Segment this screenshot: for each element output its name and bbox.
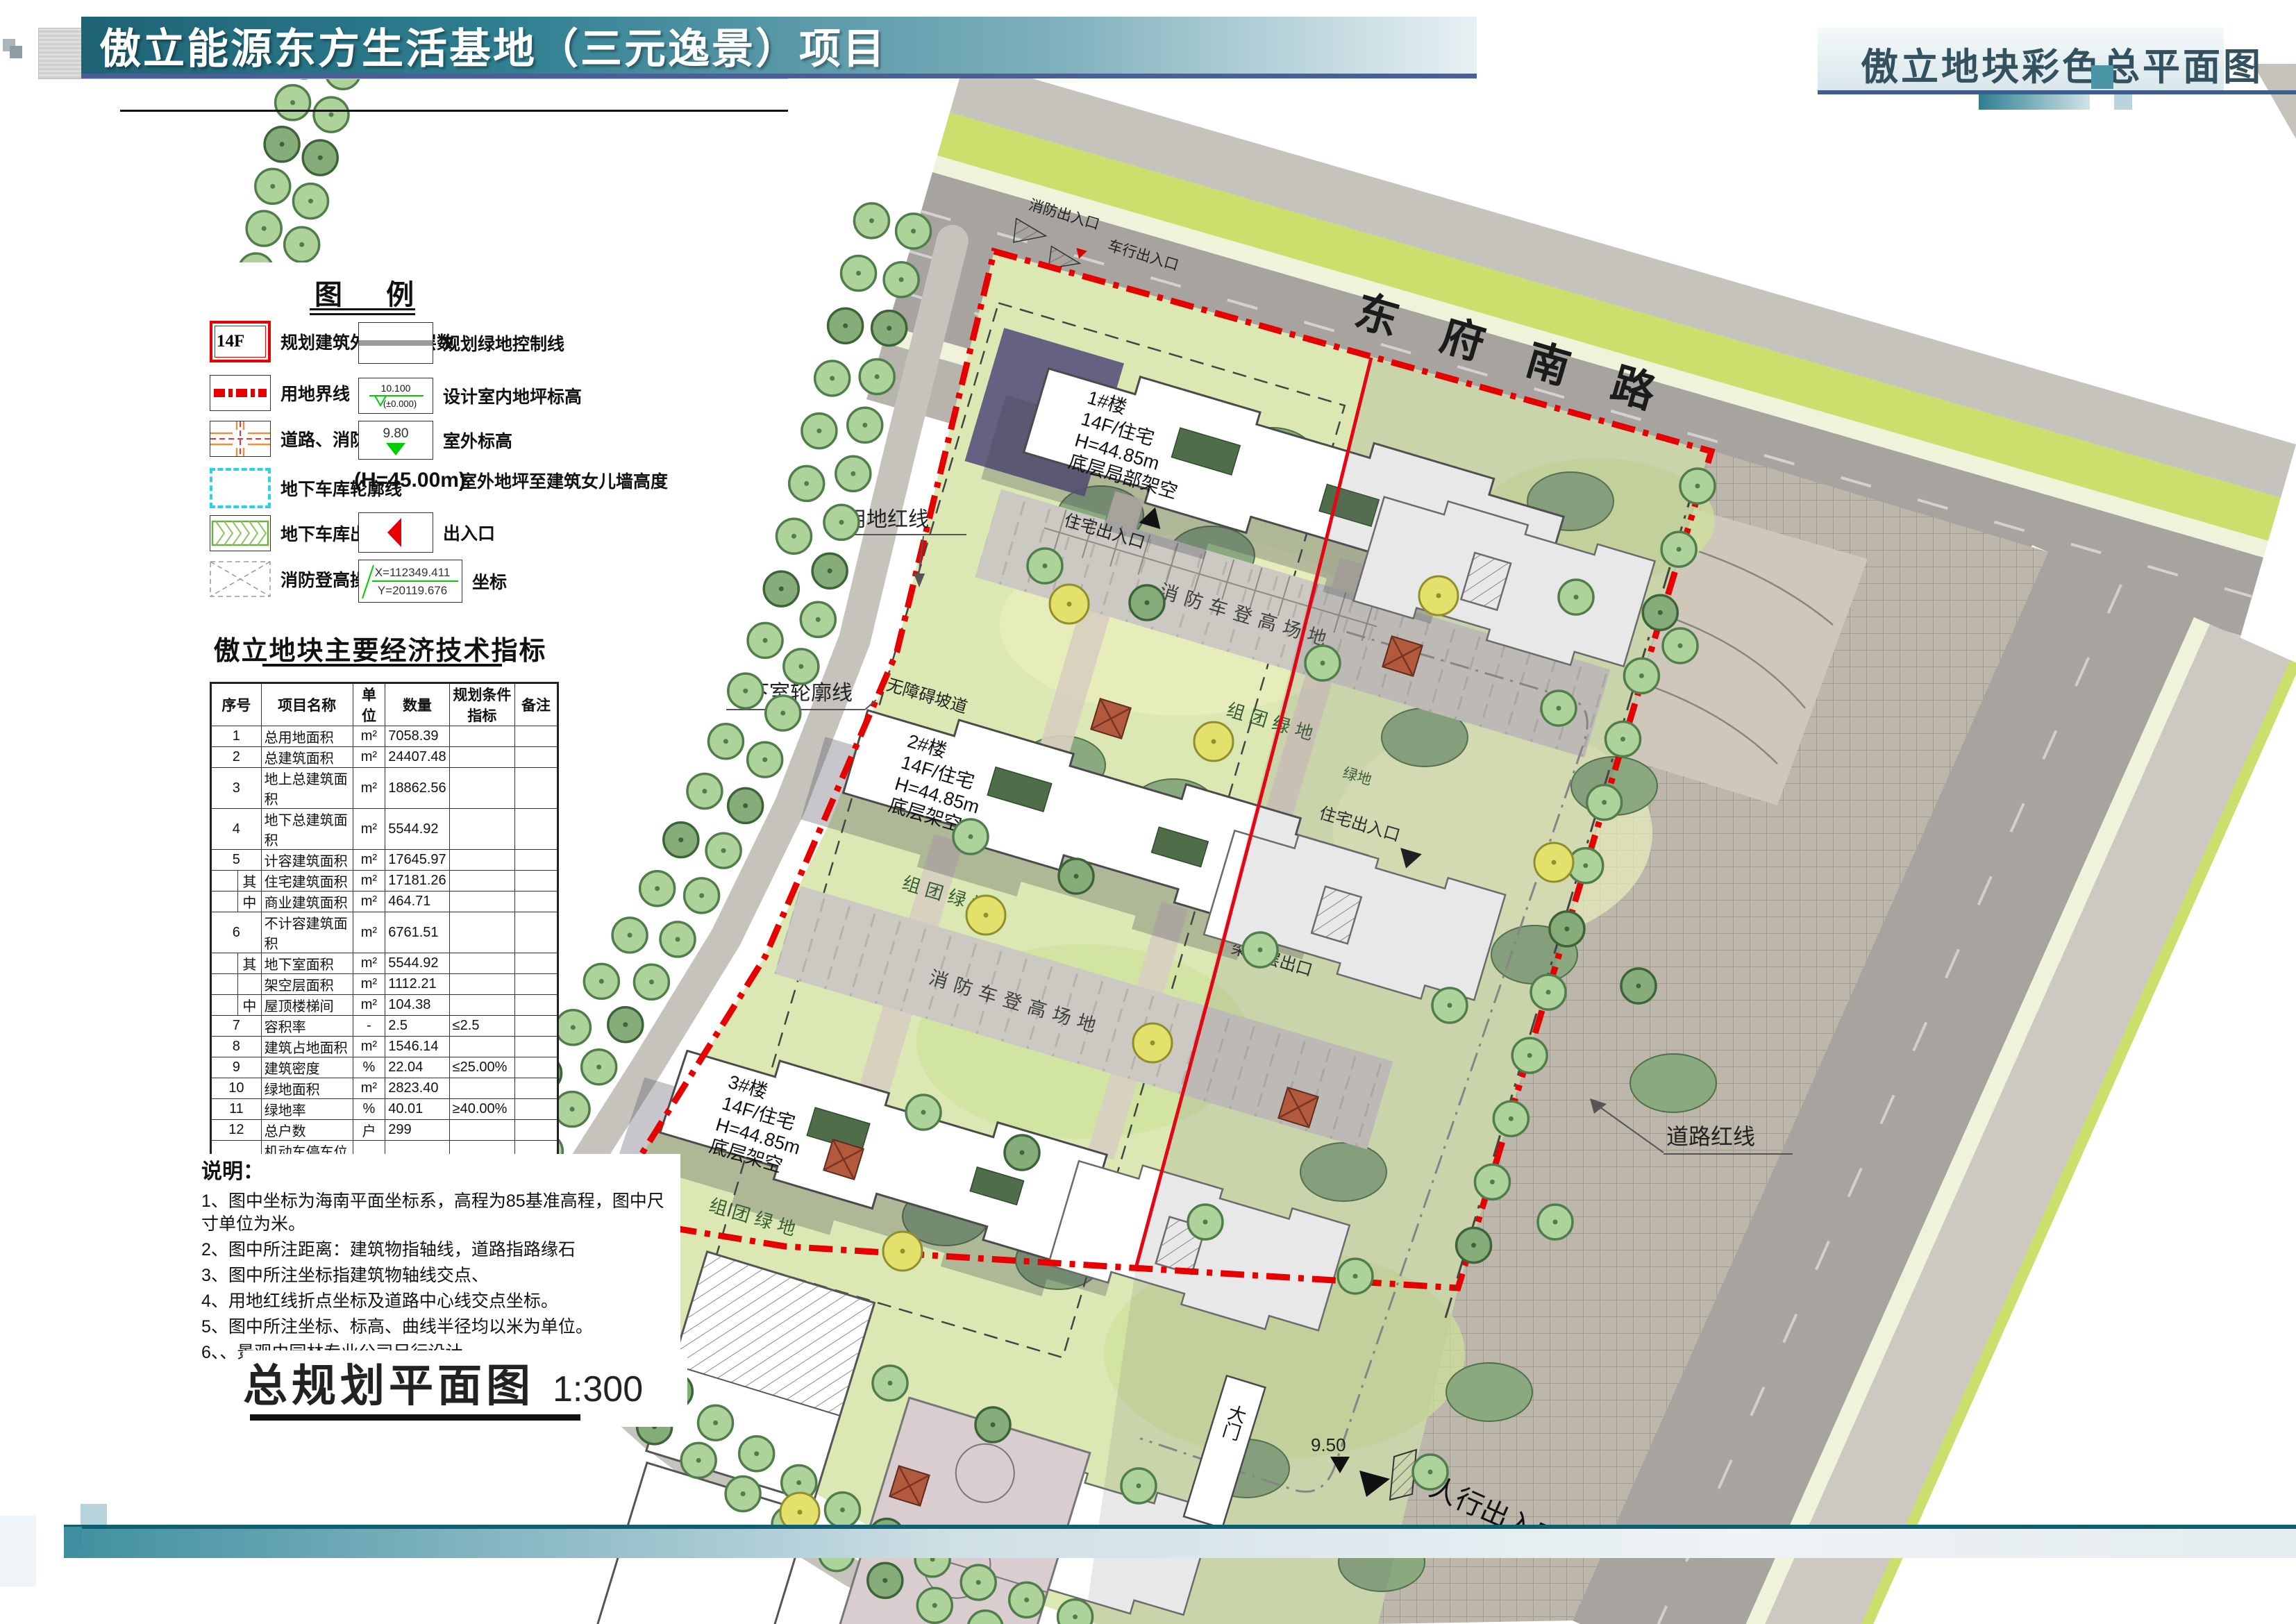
table-cell: 40.01 — [385, 1099, 449, 1120]
table-cell — [515, 995, 558, 1016]
tree-icon — [1243, 932, 1277, 967]
tree-icon — [1028, 549, 1062, 583]
table-cell — [515, 891, 558, 912]
table-cell: m² — [353, 1078, 385, 1099]
table-cell — [449, 1078, 514, 1099]
table-cell — [515, 768, 558, 809]
tree-icon — [873, 1366, 907, 1400]
table-cell: 屋顶楼梯间 — [261, 995, 353, 1016]
legend-item-indoor-level: 10.100 (±0.000) 设计室内地坪标高 — [358, 378, 582, 414]
tree-icon — [612, 918, 647, 953]
tree-icon — [640, 871, 675, 906]
table-header-row: 序号项目名称单位数量规划条件指标备注 — [211, 683, 558, 726]
tree-icon — [1475, 1164, 1509, 1199]
legend-item-site-line: 用地界线 — [210, 375, 350, 411]
green-ctrl-icon — [358, 322, 433, 364]
road-fire-lane-icon — [210, 421, 271, 457]
table-cell: 2823.40 — [385, 1078, 449, 1099]
tree-icon — [824, 505, 859, 539]
tree-icon — [1005, 1135, 1039, 1170]
tree-icon — [776, 519, 811, 553]
tree-icon — [555, 1010, 590, 1045]
tree-icon — [681, 1443, 716, 1477]
table-cell: 3 — [211, 768, 262, 809]
table-cell: 总用地面积 — [261, 726, 353, 747]
tree-icon — [848, 408, 882, 442]
table-cell: ≤25.00% — [449, 1057, 514, 1078]
table-row: 中屋顶楼梯间m²104.38 — [211, 995, 558, 1016]
table-cell: 2 — [211, 747, 262, 768]
legend-underline — [310, 308, 415, 315]
tree-icon — [1338, 1259, 1373, 1294]
table-header: 项目名称 — [261, 683, 353, 726]
tree-icon — [608, 1007, 643, 1042]
table-row: 3地上总建筑面积m²18862.56 — [211, 768, 558, 809]
table-cell — [515, 850, 558, 871]
shrub-cluster — [1446, 1363, 1532, 1421]
table-cell — [211, 995, 238, 1016]
table-cell: 容积率 — [261, 1016, 353, 1037]
table-cell — [449, 912, 514, 953]
table-cell — [515, 1120, 558, 1141]
tree-icon — [728, 788, 763, 823]
table-cell: 地下总建筑面积 — [261, 809, 353, 850]
table-cell — [211, 953, 238, 974]
legend-item-entrance: 出入口 — [358, 512, 495, 553]
svg-text:X=112349.411: X=112349.411 — [375, 566, 451, 579]
table-cell: 绿地率 — [261, 1099, 353, 1120]
table-cell — [515, 912, 558, 953]
table-cell: 6761.51 — [385, 912, 449, 953]
table-cell: 17645.97 — [385, 850, 449, 871]
table-cell — [515, 1099, 558, 1120]
table-header: 单位 — [353, 683, 385, 726]
legend-item-coordinate: X=112349.411 Y=20119.676 坐标 — [358, 560, 507, 603]
legend-item-outdoor-level: 9.80 室外标高 — [358, 421, 512, 460]
table-cell: ≥40.00% — [449, 1099, 514, 1120]
table-cell: 商业建筑面积 — [261, 891, 353, 912]
tree-icon — [812, 553, 847, 588]
svg-text:(±0.000): (±0.000) — [383, 399, 417, 409]
note-item: 4、用地红线折点坐标及道路中心线交点坐标。 — [201, 1290, 680, 1313]
tree-icon — [265, 127, 299, 162]
table-header: 备注 — [515, 683, 558, 726]
table-cell: 6 — [211, 912, 262, 953]
tree-icon — [828, 308, 863, 343]
notes-title: 说明： — [201, 1154, 680, 1184]
note-item: 2、图中所注距离：建筑物指轴线，道路指路缘石 — [201, 1239, 680, 1262]
footer-square-2 — [81, 1504, 107, 1525]
table-row: 10绿地面积m²2823.40 — [211, 1078, 558, 1099]
table-row: 其住宅建筑面积m²17181.26 — [211, 871, 558, 891]
table-cell — [449, 871, 514, 891]
tree-icon — [1606, 721, 1641, 756]
table-cell: 7 — [211, 1016, 262, 1037]
table-row: 架空层面积m²1112.21 — [211, 974, 558, 995]
tree-icon — [1121, 1468, 1156, 1503]
table-cell: 中 — [238, 891, 262, 912]
table-cell: m² — [353, 768, 385, 809]
table-row: 1总用地面积m²7058.39 — [211, 726, 558, 747]
tree-icon — [584, 964, 619, 998]
tree-icon — [582, 1050, 617, 1085]
tree-icon — [1188, 1205, 1223, 1239]
tree-icon — [953, 819, 988, 854]
tree-icon — [726, 1476, 760, 1511]
table-cell — [515, 809, 558, 850]
tree-icon — [255, 169, 290, 203]
tree-icon — [884, 262, 919, 297]
table-cell — [449, 1120, 514, 1141]
garage-entry-icon — [210, 515, 271, 551]
table-cell: 1546.14 — [385, 1037, 449, 1057]
table-cell: m² — [353, 871, 385, 891]
tree-icon — [1663, 628, 1698, 663]
shrub-cluster — [1630, 1054, 1716, 1112]
tree-icon — [1493, 1101, 1528, 1136]
tree-icon — [784, 649, 819, 684]
plan-scale-label: 总规划平面图1:300 — [243, 1350, 687, 1427]
coordinate-icon: X=112349.411 Y=20119.676 — [358, 560, 462, 603]
table-row: 12总户数户299 — [211, 1120, 558, 1141]
tree-icon — [789, 466, 824, 501]
tree-icon — [825, 1493, 860, 1527]
height-note-value: (H=45.00m) — [354, 469, 443, 492]
garage-outline-icon — [210, 468, 271, 508]
table-cell: 22.04 — [385, 1057, 449, 1078]
tree-icon — [1457, 1228, 1491, 1262]
legend-item-height: (H=45.00m) 室外地坪至建筑女儿墙高度 — [354, 468, 668, 493]
tree-icon — [841, 256, 876, 291]
tree-icon — [1058, 1600, 1093, 1624]
table-cell: - — [353, 1016, 385, 1037]
svg-text:10.100: 10.100 — [381, 383, 411, 394]
table-cell — [515, 1016, 558, 1037]
yellow-tree-icon — [1050, 585, 1089, 623]
svg-text:9.80: 9.80 — [383, 426, 409, 441]
table-cell: 户 — [353, 1120, 385, 1141]
table-row: 中商业建筑面积m²464.71 — [211, 891, 558, 912]
site-line-icon — [210, 375, 271, 411]
table-cell: ≤2.5 — [449, 1016, 514, 1037]
tree-icon — [276, 85, 310, 120]
table-cell: m² — [353, 912, 385, 953]
table-cell: 地下室面积 — [261, 953, 353, 974]
table-row: 8建筑占地面积m²1546.14 — [211, 1037, 558, 1057]
table-cell: 12 — [211, 1120, 262, 1141]
tree-icon — [961, 1565, 996, 1600]
plan-scale: 1:300 — [553, 1369, 643, 1409]
table-cell — [515, 747, 558, 768]
tree-icon — [634, 964, 669, 999]
table-cell — [515, 1037, 558, 1057]
tree-icon — [1538, 1205, 1573, 1239]
drawing-title: 傲立地块彩色总平面图 — [1861, 36, 2263, 91]
tree-icon — [766, 696, 801, 730]
table-cell — [515, 953, 558, 974]
tree-icon — [1130, 585, 1164, 620]
yellow-tree-icon — [1419, 576, 1458, 615]
tree-icon — [285, 227, 319, 262]
tree-icon — [860, 359, 894, 394]
header-accent-line — [81, 74, 1477, 78]
table-cell: 其 — [238, 871, 262, 891]
table-row: 11绿地率%40.01≥40.00% — [211, 1099, 558, 1120]
tree-icon — [1643, 595, 1677, 630]
tree-icon — [1587, 785, 1622, 820]
table-row: 4地下总建筑面积m²5544.92 — [211, 809, 558, 850]
tree-icon — [660, 922, 695, 957]
table-cell — [449, 768, 514, 809]
tree-icon — [728, 673, 763, 708]
tree-icon — [1661, 532, 1696, 567]
table-cell — [449, 995, 514, 1016]
table-cell — [515, 974, 558, 995]
table-cell: 9 — [211, 1057, 262, 1078]
notes-panel: 说明： 1、图中坐标为海南平面坐标系，高程为85基准高程，图中尺寸单位为米。2、… — [201, 1154, 680, 1367]
tree-icon — [1680, 469, 1715, 503]
table-cell — [515, 1078, 558, 1099]
yellow-tree-icon — [1194, 722, 1233, 761]
outdoor-level-icon: 9.80 — [358, 421, 433, 460]
tree-icon — [1413, 1455, 1448, 1489]
footer-band — [64, 1529, 2296, 1558]
tree-icon — [906, 1095, 941, 1130]
svg-text:Y=20119.676: Y=20119.676 — [378, 584, 447, 597]
tree-icon — [801, 602, 835, 637]
table-cell: % — [353, 1099, 385, 1120]
table-cell — [449, 850, 514, 871]
tree-icon — [802, 414, 837, 449]
table-cell: 5544.92 — [385, 809, 449, 850]
tree-icon — [836, 456, 871, 491]
footer-square-1 — [64, 1527, 82, 1548]
tree-icon — [1512, 1038, 1547, 1073]
table-cell: m² — [353, 974, 385, 995]
fire-field-icon — [210, 561, 271, 597]
tree-icon — [1009, 1582, 1044, 1617]
table-cell: 其 — [238, 953, 262, 974]
footer-left-strip — [0, 1516, 36, 1587]
header-thin-line — [120, 110, 788, 112]
tree-icon — [708, 724, 743, 759]
tree-icon — [896, 214, 931, 249]
elevation-9-50: 9.50 — [1311, 1434, 1346, 1455]
table-cell: 1 — [211, 726, 262, 747]
table-cell — [449, 809, 514, 850]
table-cell: 不计容建筑面积 — [261, 912, 353, 953]
indicator-table-title: 傲立地块主要经济技术指标 — [201, 629, 559, 667]
tree-icon — [739, 1437, 774, 1471]
tree-icon — [555, 1092, 589, 1127]
table-cell: 11 — [211, 1099, 262, 1120]
table-cell — [449, 1037, 514, 1057]
table-cell — [515, 871, 558, 891]
table-cell: 住宅建筑面积 — [261, 871, 353, 891]
table-cell: 17181.26 — [385, 871, 449, 891]
tree-icon — [1624, 658, 1659, 693]
tree-icon — [293, 184, 328, 219]
tree-icon — [1541, 691, 1576, 726]
tree-icon — [872, 311, 907, 346]
corner-square-2 — [10, 46, 22, 58]
table-cell — [449, 953, 514, 974]
table-cell: m² — [353, 747, 385, 768]
table-cell: m² — [353, 726, 385, 747]
table-cell — [449, 891, 514, 912]
table-header: 规划条件指标 — [449, 683, 514, 726]
table-cell: 8 — [211, 1037, 262, 1057]
tree-icon — [868, 1563, 903, 1598]
table-cell: 建筑占地面积 — [261, 1037, 353, 1057]
tree-icon — [1550, 912, 1584, 946]
tree-icon — [1059, 859, 1093, 894]
table-cell: 5 — [211, 850, 262, 871]
indicator-table-panel: 傲立地块主要经济技术指标 序号项目名称单位数量规划条件指标备注1总用地面积m²7… — [201, 623, 559, 1130]
tree-icon — [314, 97, 349, 132]
table-cell: m² — [353, 995, 385, 1016]
tree-icon — [1559, 580, 1593, 614]
table-row: 2总建筑面积m²24407.48 — [211, 747, 558, 768]
table-cell — [211, 974, 238, 995]
table-cell: 18862.56 — [385, 768, 449, 809]
table-cell: m² — [353, 891, 385, 912]
note-item: 5、图中所注坐标、标高、曲线半径均以米为单位。 — [201, 1316, 680, 1339]
table-cell: 10 — [211, 1078, 262, 1099]
table-cell: m² — [353, 1037, 385, 1057]
table-row: 7容积率-2.5≤2.5 — [211, 1016, 558, 1037]
table-cell: % — [353, 1057, 385, 1078]
tree-icon — [303, 140, 337, 175]
header-right-square — [2091, 65, 2113, 89]
entrance-icon — [358, 512, 433, 553]
indoor-level-icon: 10.100 (±0.000) — [358, 378, 433, 414]
svg-text:道路红线: 道路红线 — [1666, 1124, 1755, 1149]
tree-icon — [1305, 646, 1340, 680]
plan-title: 总规划平面图 — [243, 1361, 535, 1411]
table-cell: 464.71 — [385, 891, 449, 912]
table-cell: 7058.39 — [385, 726, 449, 747]
table-cell: 299 — [385, 1120, 449, 1141]
tree-icon — [975, 1407, 1010, 1442]
table-row: 其地下室面积m²5544.92 — [211, 953, 558, 974]
table-cell: 架空层面积 — [261, 974, 353, 995]
tree-icon — [815, 361, 850, 396]
note-item: 3、图中所注坐标指建筑物轴线交点、 — [201, 1264, 680, 1287]
table-header: 序号 — [211, 683, 262, 726]
tree-icon — [1621, 969, 1656, 1003]
legend-item-green-ctrl: 规划绿地控制线 — [358, 322, 564, 364]
tree-icon — [748, 742, 782, 777]
page-title: 傲立能源东方生活基地（三元逸景）项目 — [99, 15, 887, 76]
table-cell: 地上总建筑面积 — [261, 768, 353, 809]
yellow-tree-icon — [883, 1232, 922, 1271]
table-cell: m² — [353, 809, 385, 850]
table-cell: m² — [353, 953, 385, 974]
table-cell: 4 — [211, 809, 262, 850]
tree-icon — [687, 773, 722, 808]
table-row: 6不计容建筑面积m²6761.51 — [211, 912, 558, 953]
table-cell: 总户数 — [261, 1120, 353, 1141]
footer-line — [64, 1525, 2296, 1529]
table-cell — [238, 974, 262, 995]
tree-icon — [1531, 975, 1566, 1010]
building-outline-icon: 14F — [210, 321, 271, 362]
table-cell: 2.5 — [385, 1016, 449, 1037]
tree-icon — [748, 623, 782, 658]
table-cell — [449, 726, 514, 747]
tree-icon — [764, 571, 798, 606]
header-right-square-2 — [2114, 94, 2132, 110]
table-cell — [449, 747, 514, 768]
table-cell: 总建筑面积 — [261, 747, 353, 768]
table-cell: 绿地面积 — [261, 1078, 353, 1099]
tree-icon — [1432, 988, 1467, 1023]
indicator-table-underline — [262, 664, 502, 667]
tree-icon — [854, 203, 889, 238]
legend-title: 图 例 — [315, 272, 432, 312]
table-cell — [211, 891, 238, 912]
header-title-bar: 傲立能源东方生活基地（三元逸景）项目 — [81, 17, 1477, 74]
table-cell: m² — [353, 850, 385, 871]
table-cell: 24407.48 — [385, 747, 449, 768]
table-header: 数量 — [385, 683, 449, 726]
table-cell: 计容建筑面积 — [261, 850, 353, 871]
table-row: 5计容建筑面积m²17645.97 — [211, 850, 558, 871]
table-cell — [515, 1057, 558, 1078]
table-cell: 建筑密度 — [261, 1057, 353, 1078]
table-cell — [515, 726, 558, 747]
yellow-tree-icon — [1534, 843, 1573, 882]
tree-icon — [917, 1588, 952, 1623]
table-row: 9建筑密度%22.04≤25.00% — [211, 1057, 558, 1078]
note-item: 1、图中坐标为海南平面坐标系，高程为85基准高程，图中尺寸单位为米。 — [201, 1190, 680, 1236]
table-cell: 104.38 — [385, 995, 449, 1016]
tree-icon — [664, 823, 698, 857]
yellow-tree-icon — [966, 896, 1005, 935]
header-right-strip — [1979, 94, 2090, 110]
table-cell — [211, 871, 238, 891]
tree-icon — [685, 878, 719, 913]
legend-panel: 图 例 14F 规划建筑外墙线及层数 用地界线 道路、消防车道 地下车库轮廓线 … — [200, 262, 558, 618]
table-cell: 1112.21 — [385, 974, 449, 995]
table-cell: 5544.92 — [385, 953, 449, 974]
plan-title-underline — [250, 1414, 580, 1421]
tree-icon — [706, 833, 741, 868]
yellow-tree-icon — [1133, 1023, 1172, 1062]
table-cell: 中 — [238, 995, 262, 1016]
tree-icon — [246, 211, 281, 246]
table-cell — [449, 974, 514, 995]
tree-icon — [698, 1405, 733, 1440]
